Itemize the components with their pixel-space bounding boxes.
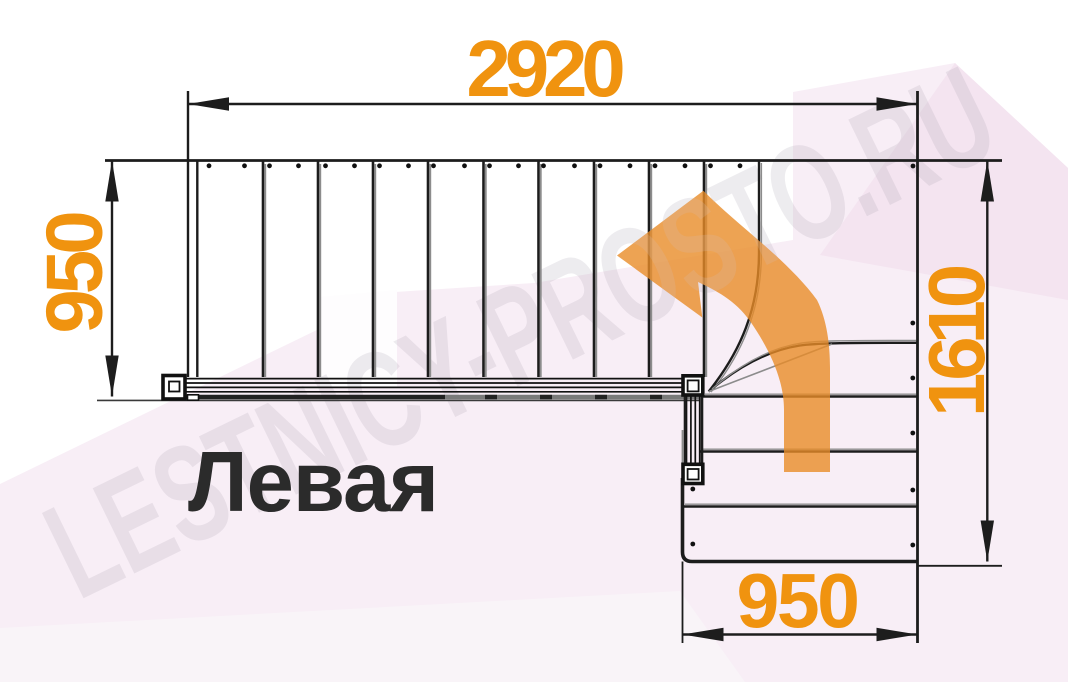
svg-text:Левая: Левая xyxy=(188,435,438,530)
svg-text:950: 950 xyxy=(737,559,858,645)
svg-text:2920: 2920 xyxy=(466,24,623,113)
svg-text:950: 950 xyxy=(30,213,119,334)
svg-text:1610: 1610 xyxy=(912,266,1001,417)
